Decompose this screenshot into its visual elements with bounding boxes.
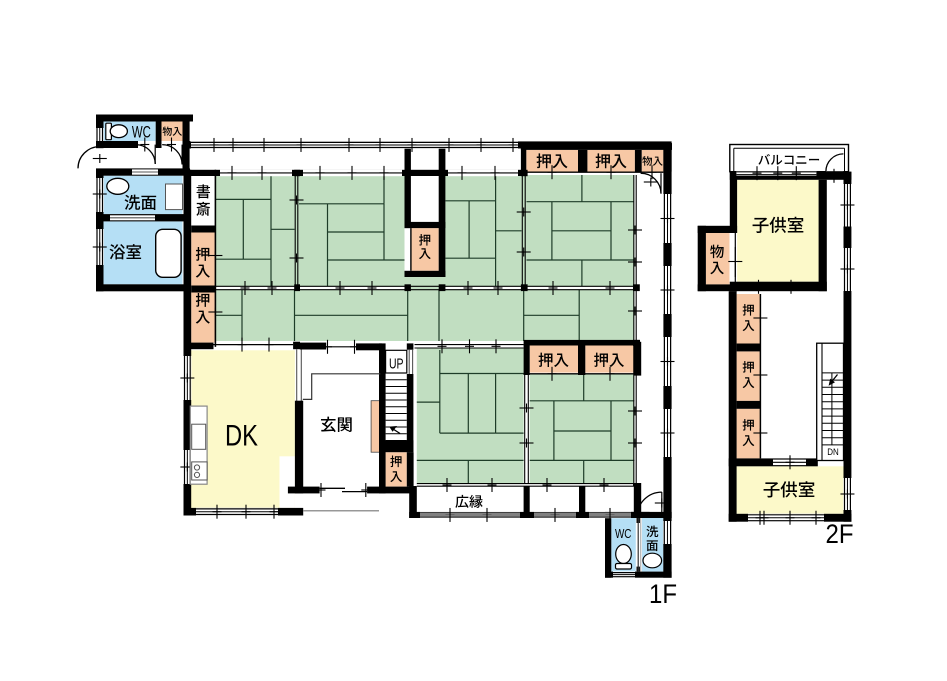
svg-text:2F: 2F [826, 519, 854, 549]
svg-text:WC: WC [615, 526, 632, 541]
svg-text:1F: 1F [649, 579, 677, 609]
svg-text:WC: WC [132, 122, 151, 141]
svg-text:DN: DN [827, 447, 839, 457]
svg-text:DK: DK [225, 419, 258, 452]
svg-text:UP: UP [389, 355, 404, 372]
